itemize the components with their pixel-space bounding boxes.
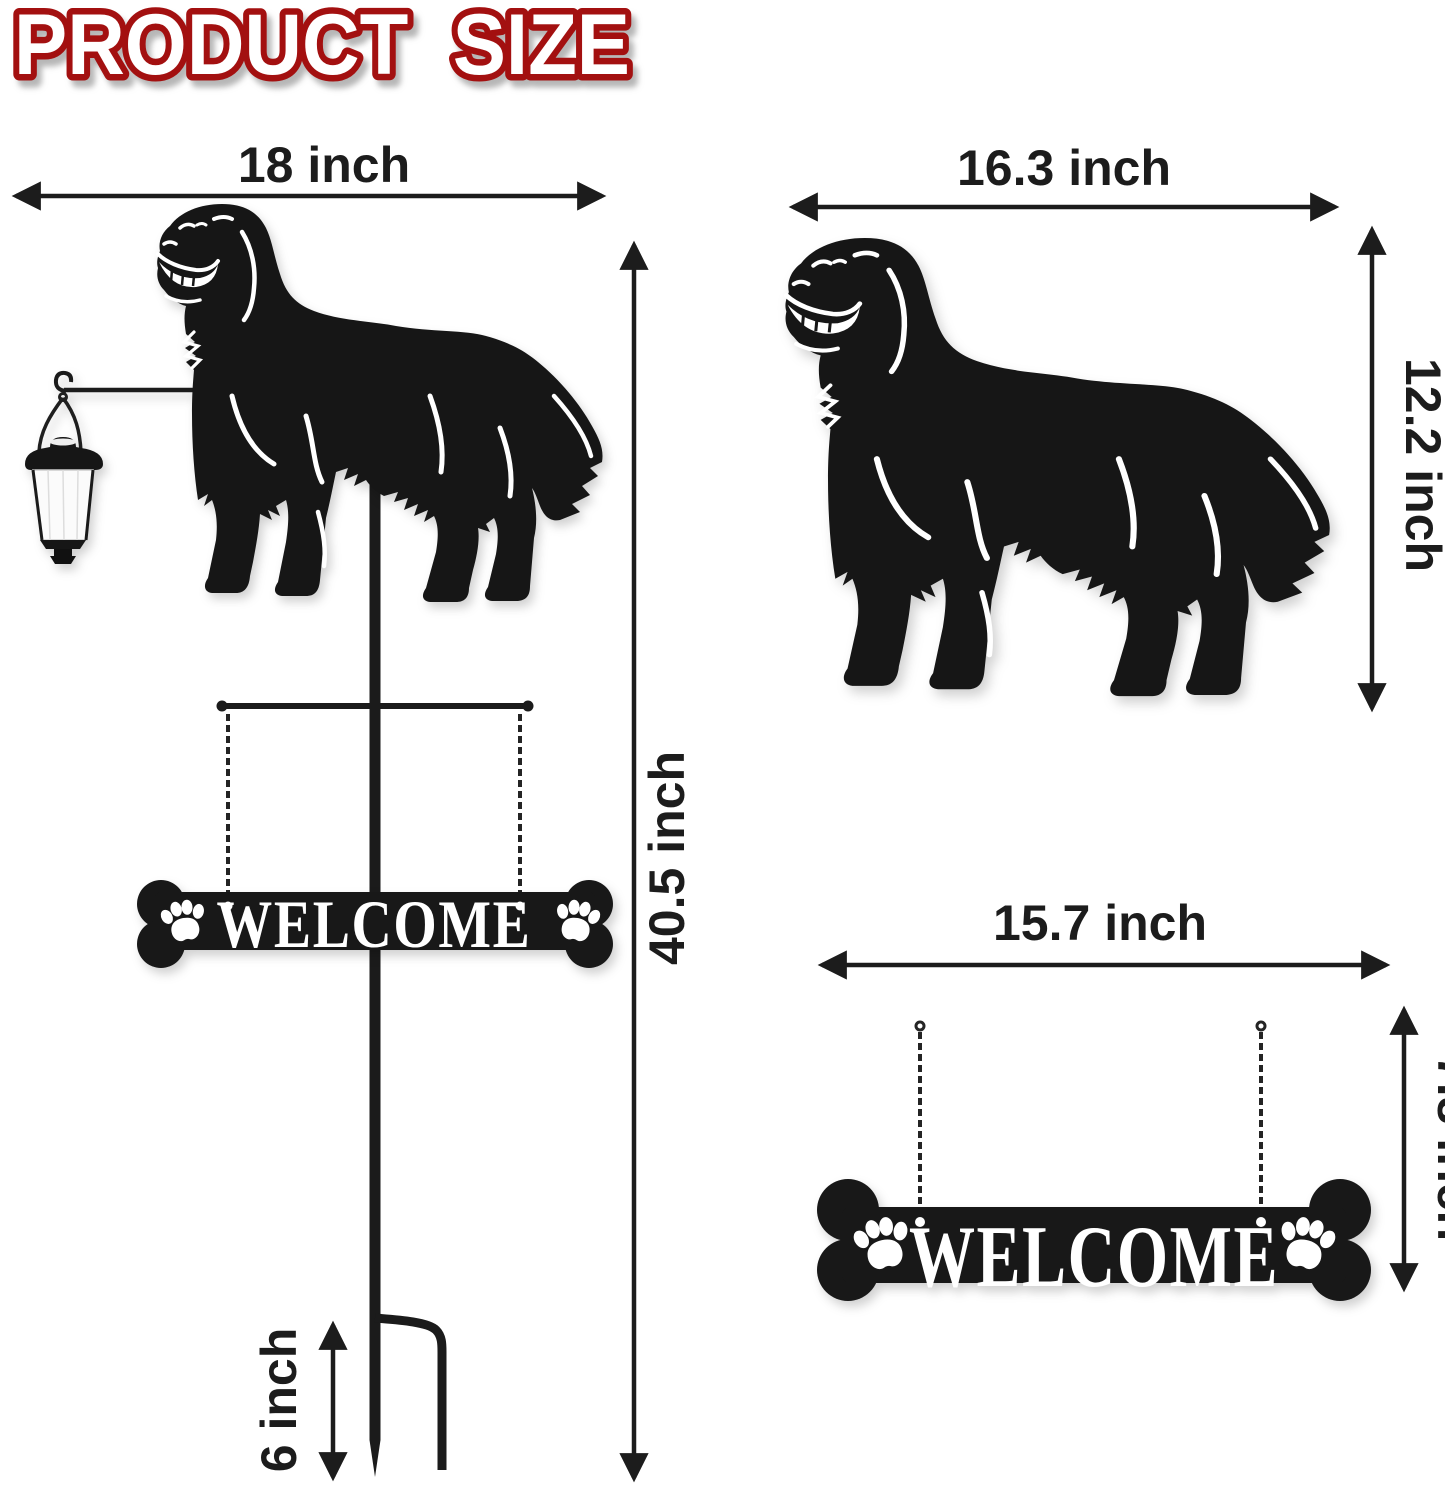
lantern-base [40,540,86,549]
dimension-width-sign: 15.7 inch [822,895,1386,965]
stake-point [370,1440,381,1477]
dimension-label-12-2-inch: 12.2 inch [1395,358,1445,572]
chain-hook [916,1022,924,1030]
ground-stake [370,455,443,1477]
dimension-label-40-5-inch: 40.5 inch [639,751,695,965]
dog-silhouette [785,238,1329,696]
left-figure: 18 inch 40.5 inch [16,137,695,1478]
product-size-diagram: PRODUCT SIZE 18 inch 40.5 inch [0,0,1445,1490]
diagram-canvas: PRODUCT SIZE 18 inch 40.5 inch [0,0,1445,1490]
crossbar-end-knob [523,701,534,712]
dimension-height-sign: 7.8 inch [1404,1010,1445,1288]
dimension-width-left: 18 inch [16,137,602,196]
dimension-label-15-7-inch: 15.7 inch [993,895,1207,951]
welcome-text: WELCOME [217,886,532,962]
dimension-height-left: 40.5 inch [634,245,695,1478]
dimension-width-dog: 16.3 inch [793,140,1335,207]
dimension-label-6-inch: 6 inch [251,1328,307,1472]
stake-fork [375,1318,442,1470]
solar-panel [50,439,76,446]
page-title: PRODUCT SIZE [14,0,630,93]
dog-figure: 16.3 inch 12.2 inch [785,140,1445,708]
welcome-bone-sign: WELCOME [817,1179,1371,1306]
dimension-height-dog: 12.2 inch [1372,230,1445,708]
dimension-stake-depth: 6 inch [251,1325,333,1477]
dimension-label-7-8-inch: 7.8 inch [1427,1055,1445,1241]
chain-hook [1257,1022,1265,1030]
sign-figure: 15.7 inch 7.8 inch WELCOME [817,895,1445,1306]
dimension-label-18-inch: 18 inch [238,137,410,193]
solar-lantern [25,394,103,565]
welcome-text: WELCOME [909,1209,1279,1306]
dimension-label-16-3-inch: 16.3 inch [957,140,1171,196]
crossbar-end-knob [217,701,228,712]
welcome-bone-sign: WELCOME [137,880,613,968]
